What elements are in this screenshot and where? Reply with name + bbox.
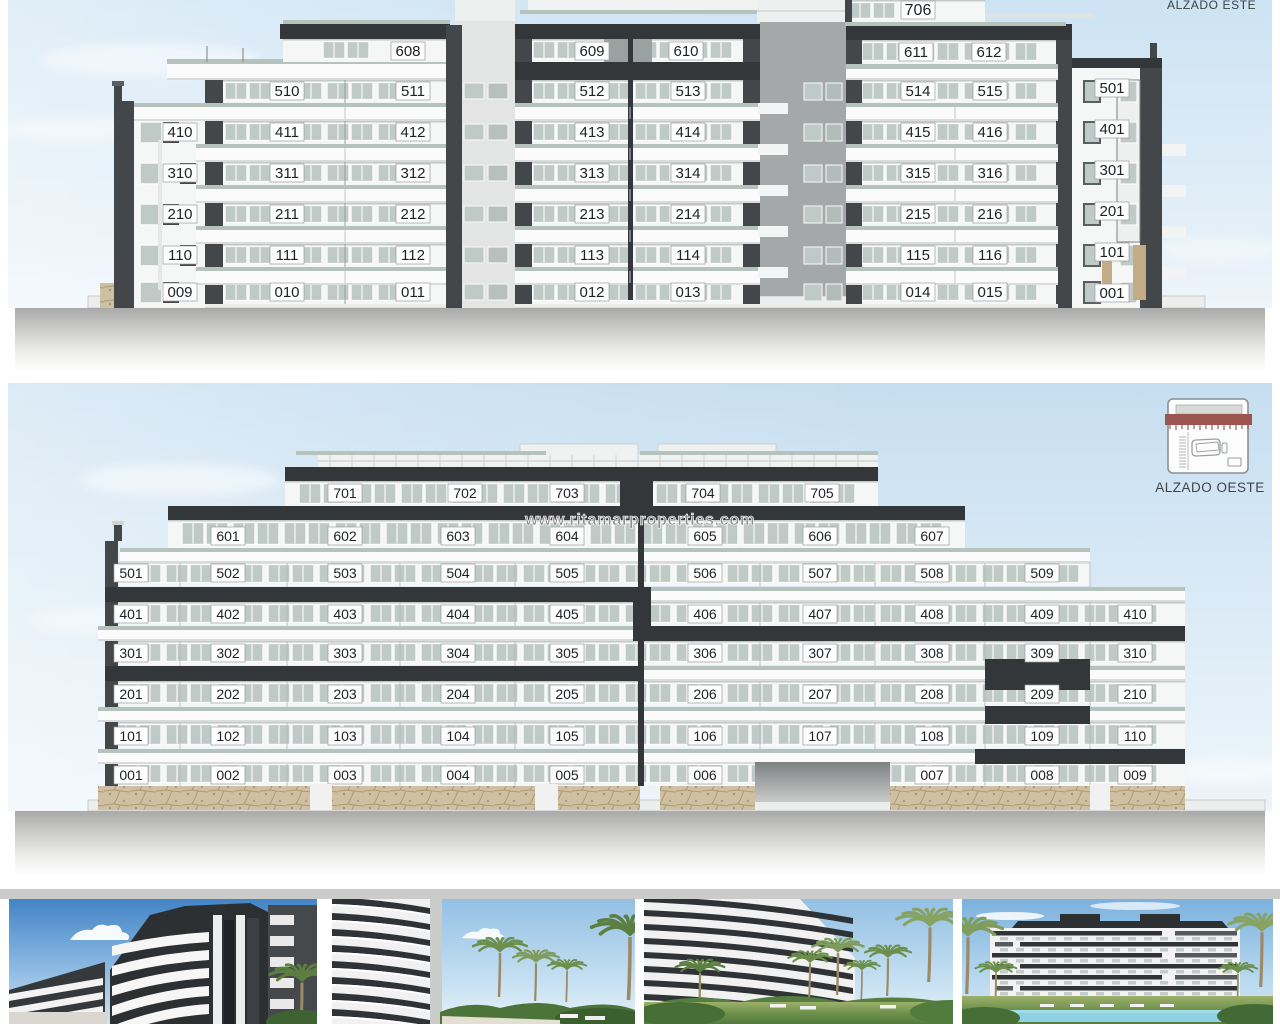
svg-text:511: 511 (401, 83, 425, 100)
svg-text:601: 601 (216, 528, 240, 544)
svg-text:315: 315 (905, 165, 930, 182)
svg-text:312: 312 (400, 165, 425, 182)
svg-text:107: 107 (808, 728, 832, 744)
svg-text:406: 406 (693, 606, 717, 622)
svg-text:014: 014 (905, 284, 930, 301)
svg-text:101: 101 (119, 728, 143, 744)
svg-text:103: 103 (333, 728, 357, 744)
svg-text:602: 602 (333, 528, 357, 544)
svg-text:401: 401 (1099, 121, 1124, 138)
svg-text:603: 603 (446, 528, 470, 544)
svg-text:706: 706 (905, 2, 932, 19)
svg-text:314: 314 (675, 165, 700, 182)
svg-text:412: 412 (400, 124, 425, 141)
svg-text:211: 211 (275, 206, 299, 223)
svg-text:607: 607 (920, 528, 944, 544)
svg-text:013: 013 (675, 284, 700, 301)
svg-text:409: 409 (1030, 606, 1054, 622)
svg-text:115: 115 (906, 247, 930, 264)
svg-text:212: 212 (400, 206, 425, 223)
svg-text:310: 310 (1123, 645, 1147, 661)
svg-text:501: 501 (119, 565, 143, 581)
svg-text:512: 512 (579, 83, 604, 100)
svg-text:009: 009 (167, 284, 192, 301)
svg-text:505: 505 (555, 565, 579, 581)
svg-text:606: 606 (808, 528, 832, 544)
svg-text:609: 609 (579, 43, 604, 60)
svg-text:702: 702 (453, 485, 477, 501)
svg-text:303: 303 (333, 645, 357, 661)
svg-text:010: 010 (274, 284, 299, 301)
svg-text:611: 611 (904, 44, 928, 61)
svg-text:605: 605 (693, 528, 717, 544)
svg-text:416: 416 (977, 124, 1002, 141)
svg-text:109: 109 (1030, 728, 1054, 744)
svg-text:110: 110 (1124, 728, 1147, 744)
svg-text:413: 413 (579, 124, 604, 141)
svg-text:114: 114 (676, 247, 700, 264)
svg-text:003: 003 (333, 767, 357, 783)
svg-text:504: 504 (446, 565, 470, 581)
svg-text:403: 403 (333, 606, 357, 622)
svg-text:214: 214 (675, 206, 700, 223)
svg-text:ALZADO OESTE: ALZADO OESTE (1155, 480, 1265, 495)
svg-text:306: 306 (693, 645, 717, 661)
svg-text:310: 310 (167, 165, 192, 182)
svg-text:210: 210 (1123, 686, 1147, 702)
svg-text:012: 012 (579, 284, 604, 301)
svg-text:610: 610 (673, 43, 698, 60)
svg-text:311: 311 (275, 165, 299, 182)
svg-text:509: 509 (1030, 565, 1054, 581)
svg-text:008: 008 (1030, 767, 1054, 783)
svg-text:009: 009 (1123, 767, 1147, 783)
svg-text:410: 410 (1123, 606, 1147, 622)
svg-text:216: 216 (977, 206, 1002, 223)
svg-text:407: 407 (808, 606, 832, 622)
svg-text:203: 203 (333, 686, 357, 702)
svg-text:316: 316 (977, 165, 1002, 182)
svg-text:308: 308 (920, 645, 944, 661)
svg-text:116: 116 (978, 247, 1002, 264)
svg-text:205: 205 (555, 686, 579, 702)
svg-text:011: 011 (401, 284, 425, 301)
svg-text:004: 004 (446, 767, 470, 783)
svg-text:204: 204 (446, 686, 470, 702)
svg-text:301: 301 (1099, 162, 1124, 179)
svg-text:404: 404 (446, 606, 470, 622)
svg-text:410: 410 (167, 124, 192, 141)
svg-text:007: 007 (920, 767, 944, 783)
svg-text:208: 208 (920, 686, 944, 702)
svg-text:510: 510 (274, 83, 299, 100)
svg-text:104: 104 (446, 728, 470, 744)
svg-text:101: 101 (1099, 244, 1124, 261)
svg-text:612: 612 (976, 44, 1001, 61)
svg-text:305: 305 (555, 645, 579, 661)
svg-text:110: 110 (168, 247, 192, 264)
svg-text:501: 501 (1099, 80, 1124, 97)
svg-text:701: 701 (333, 485, 357, 501)
svg-text:015: 015 (977, 284, 1002, 301)
svg-text:006: 006 (693, 767, 717, 783)
svg-text:307: 307 (808, 645, 832, 661)
svg-text:215: 215 (905, 206, 930, 223)
svg-text:304: 304 (446, 645, 470, 661)
svg-text:302: 302 (216, 645, 240, 661)
svg-text:207: 207 (808, 686, 832, 702)
svg-text:415: 415 (905, 124, 930, 141)
svg-text:506: 506 (693, 565, 717, 581)
svg-text:411: 411 (275, 124, 299, 141)
svg-text:508: 508 (920, 565, 944, 581)
svg-text:209: 209 (1030, 686, 1054, 702)
svg-text:ALZADO ESTE: ALZADO ESTE (1167, 0, 1256, 12)
svg-text:108: 108 (920, 728, 944, 744)
svg-text:604: 604 (555, 528, 579, 544)
svg-text:111: 111 (276, 247, 299, 264)
svg-text:313: 313 (579, 165, 604, 182)
svg-text:201: 201 (119, 686, 143, 702)
svg-text:102: 102 (216, 728, 240, 744)
svg-text:206: 206 (693, 686, 717, 702)
svg-text:www.ritamarproperties.com: www.ritamarproperties.com (524, 511, 755, 529)
svg-text:201: 201 (1099, 203, 1124, 220)
svg-text:705: 705 (810, 485, 834, 501)
svg-text:002: 002 (216, 767, 240, 783)
svg-text:515: 515 (977, 83, 1002, 100)
svg-text:112: 112 (401, 247, 425, 264)
svg-text:608: 608 (395, 43, 420, 60)
svg-text:105: 105 (555, 728, 579, 744)
svg-text:113: 113 (580, 247, 604, 264)
svg-text:502: 502 (216, 565, 240, 581)
svg-text:703: 703 (555, 485, 579, 501)
svg-text:503: 503 (333, 565, 357, 581)
svg-text:704: 704 (691, 485, 715, 501)
svg-text:405: 405 (555, 606, 579, 622)
svg-text:301: 301 (119, 645, 143, 661)
svg-text:202: 202 (216, 686, 240, 702)
svg-text:408: 408 (920, 606, 944, 622)
svg-text:414: 414 (675, 124, 700, 141)
svg-text:001: 001 (119, 767, 143, 783)
svg-text:210: 210 (167, 206, 192, 223)
svg-text:005: 005 (555, 767, 579, 783)
svg-text:001: 001 (1099, 285, 1124, 302)
svg-text:106: 106 (693, 728, 717, 744)
svg-text:402: 402 (216, 606, 240, 622)
svg-text:513: 513 (675, 83, 700, 100)
svg-text:514: 514 (905, 83, 930, 100)
svg-text:309: 309 (1030, 645, 1054, 661)
svg-text:401: 401 (119, 606, 143, 622)
svg-text:507: 507 (808, 565, 832, 581)
svg-text:213: 213 (579, 206, 604, 223)
